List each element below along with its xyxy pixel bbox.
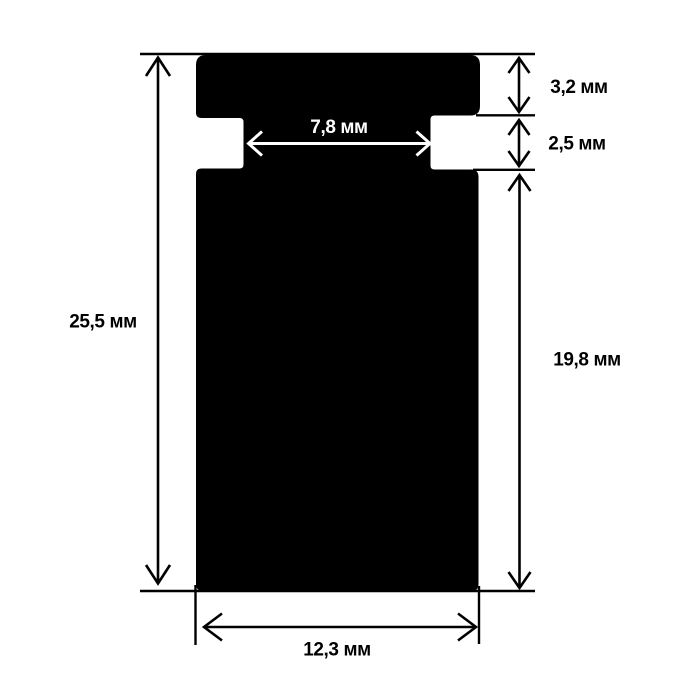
svg-text:2,5 мм: 2,5 мм [548, 133, 605, 154]
svg-text:25,5 мм: 25,5 мм [69, 312, 137, 333]
svg-text:7,8 мм: 7,8 мм [310, 117, 367, 138]
svg-text:12,3 мм: 12,3 мм [303, 640, 371, 661]
svg-text:19,8 мм: 19,8 мм [553, 350, 621, 371]
svg-text:3,2 мм: 3,2 мм [550, 77, 607, 98]
